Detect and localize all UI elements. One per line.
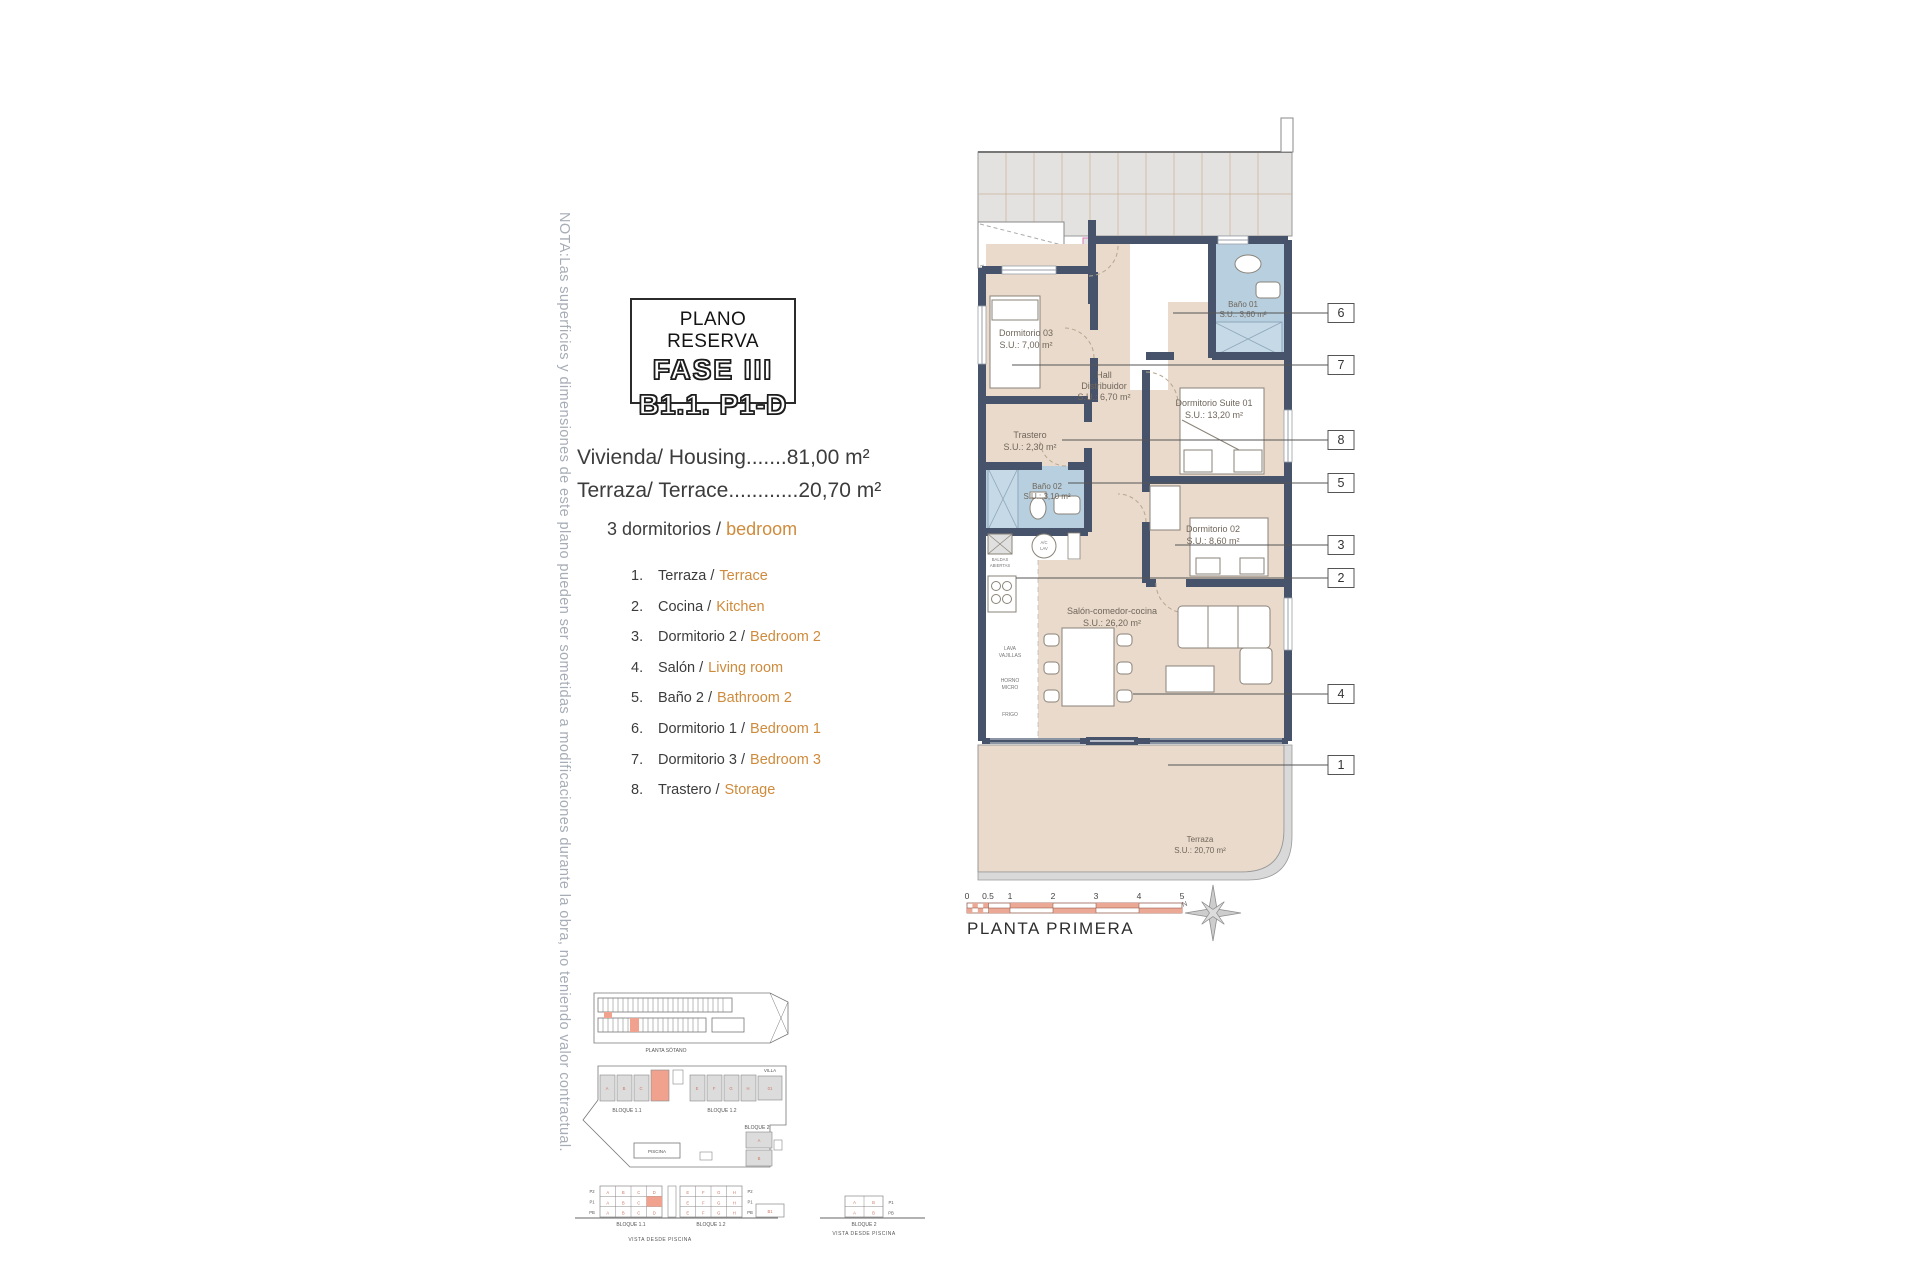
compass-north-label: N [1181,901,1188,909]
legend-num: 7. [631,752,658,768]
legend-item: 4.Salón /Living room [631,660,821,691]
svg-text:E: E [686,1211,689,1216]
bedrooms-heading: 3 dormitorios / bedroom [607,519,797,540]
svg-text:A: A [606,1211,609,1216]
svg-text:H: H [733,1200,736,1205]
annex-label: B1 [767,1209,773,1214]
svg-text:P2: P2 [589,1189,595,1194]
legend-num: 5. [631,690,658,706]
elev-block11-label: BLOQUE 1.1 [616,1222,645,1228]
label-bano-02: Baño 02 [1032,482,1062,491]
callout-3: 3 [1338,538,1345,552]
callout-7: 7 [1338,358,1345,372]
svg-text:A: A [758,1138,761,1143]
svg-text:PB: PB [888,1211,894,1216]
callout-8: 8 [1338,433,1345,447]
svg-text:B: B [872,1211,875,1216]
legend-es: Dormitorio 2 / [658,629,745,645]
label-salon: Salón-comedor-cocina [1067,606,1157,616]
svg-text:P1: P1 [589,1200,595,1205]
label-trastero: Trastero [1013,430,1046,440]
svg-text:S.U.: 13,20 m²: S.U.: 13,20 m² [1185,410,1243,420]
svg-text:S.U.: 3,60 m²: S.U.: 3,60 m² [1219,310,1266,319]
svg-text:S.U.: 20,70 m²: S.U.: 20,70 m² [1174,846,1226,855]
svg-text:S.U.: 3,10 m²: S.U.: 3,10 m² [1023,492,1070,501]
legend-en: Living room [708,660,783,676]
legend-es: Terraza / [658,568,714,584]
label-terraza: Terraza [1187,835,1214,844]
legend-num: 3. [631,629,658,645]
svg-text:F: F [702,1200,705,1205]
svg-text:PB: PB [589,1210,595,1215]
svg-text:D: D [653,1190,656,1195]
scale-tick: 0.5 [982,891,994,901]
svg-text:E: E [696,1086,699,1091]
svg-text:C: C [637,1200,640,1205]
kitchen-oven-label: HORNO [1001,678,1020,684]
legend-es: Dormitorio 1 / [658,721,745,737]
floor-plan: 1-D [950,100,1400,960]
view-label-2: VISTA DESDE PISCINA [832,1231,895,1237]
svg-text:B: B [622,1190,625,1195]
svg-text:C: C [637,1211,640,1216]
elev-block12-label: BLOQUE 1.2 [696,1222,725,1228]
svg-text:B: B [622,1200,625,1205]
block2-label: BLOQUE 2 [744,1125,769,1131]
svg-text:H: H [733,1190,736,1195]
villa-unit: 01 [768,1086,773,1091]
svg-text:S.U.: 7,00 m²: S.U.: 7,00 m² [999,340,1052,350]
block12-label: BLOQUE 1.2 [707,1108,736,1114]
elev-block2-label: BLOQUE 2 [851,1222,876,1228]
svg-text:P1: P1 [888,1200,894,1205]
surface-areas: Vivienda/ Housing.......81,00 m² Terraza… [577,441,881,507]
legend-item: 1.Terraza /Terrace [631,568,821,599]
svg-text:G: G [717,1200,720,1205]
svg-text:A: A [606,1086,609,1091]
legend-num: 6. [631,721,658,737]
callout-5: 5 [1338,476,1345,490]
housing-area: Vivienda/ Housing.......81,00 m² [577,441,881,474]
svg-text:MICRO: MICRO [1002,685,1019,691]
svg-text:S.U.: 2,30 m²: S.U.: 2,30 m² [1003,442,1056,452]
basement-label: PLANTA SÓTANO [646,1047,687,1054]
svg-text:B: B [872,1200,875,1205]
legend-en: Bedroom 3 [750,752,821,768]
legend-num: 8. [631,782,658,798]
label-suite-01: Dormitorio Suite 01 [1175,398,1252,408]
block11-label: BLOQUE 1.1 [612,1108,641,1114]
basement-plan [594,993,788,1043]
scale-tick: 4 [1137,891,1142,901]
svg-text:C: C [639,1086,642,1091]
legend-en: Storage [725,782,776,798]
scale-tick: 0 [965,891,970,901]
svg-text:Distribuidor: Distribuidor [1081,381,1127,391]
site-overview: PLANTA SÓTANO A B C BLOQUE 1.1 E F G H B… [570,985,1040,1280]
phase-title: FASE III [632,353,794,387]
kitchen-shelf-label: BALDAS [992,557,1009,562]
label-hall: Hall [1096,370,1112,380]
unit-title: B1.1. P1-D [632,387,794,423]
svg-text:F: F [702,1211,705,1216]
kitchen-dishwasher-label: LAVA [1004,646,1017,652]
legend-es: Baño 2 / [658,690,712,706]
svg-text:H: H [746,1086,749,1091]
legend-en: Bedroom 1 [750,721,821,737]
svg-text:A: A [853,1200,856,1205]
terrace-area: Terraza/ Terrace............20,70 m² [577,474,881,507]
legend-en: Kitchen [716,599,764,615]
svg-text:PB: PB [747,1210,753,1215]
room-legend: 1.Terraza /Terrace 2.Cocina /Kitchen 3.D… [631,568,821,813]
label-dormitorio-03: Dormitorio 03 [999,328,1053,338]
legend-num: 1. [631,568,658,584]
elevation-block-2: A B A B P1 PB BLOQUE 2 VISTA DESDE PISCI… [820,1196,925,1237]
svg-text:E: E [686,1200,689,1205]
svg-text:G: G [717,1190,720,1195]
svg-text:G: G [717,1211,720,1216]
scale-tick: 3 [1094,891,1099,901]
svg-text:B: B [758,1156,761,1161]
svg-text:A: A [606,1190,609,1195]
legend-en: Terrace [719,568,767,584]
svg-text:P1: P1 [747,1200,753,1205]
svg-text:P2: P2 [747,1189,753,1194]
svg-text:C: C [637,1190,640,1195]
elevation-blocks-1: A B C D A B C A B C D P2 P1 PB BLOQUE 1.… [575,1186,784,1243]
floor-label: PLANTA PRIMERA [967,919,1134,938]
legend-item: 6.Dormitorio 1 /Bedroom 1 [631,721,821,752]
legend-item: 8.Trastero /Storage [631,782,821,813]
label-dormitorio-02: Dormitorio 02 [1186,524,1240,534]
callout-2: 2 [1338,571,1345,585]
legend-es: Cocina / [658,599,711,615]
compass-icon: N [1181,885,1241,941]
highlighted-elevation-unit [647,1196,663,1206]
svg-text:E: E [686,1190,689,1195]
legend-es: Trastero / [658,782,720,798]
legend-num: 2. [631,599,658,615]
common-corridor [978,118,1293,236]
legend-en: Bedroom 2 [750,629,821,645]
svg-text:A: A [853,1211,856,1216]
svg-text:ABIERTAS: ABIERTAS [990,563,1011,568]
svg-text:B: B [623,1086,626,1091]
legend-item: 5.Baño 2 /Bathroom 2 [631,690,821,721]
bedrooms-heading-en: bedroom [726,519,797,539]
legend-es: Dormitorio 3 / [658,752,745,768]
svg-text:S.U.: 6,70 m²: S.U.: 6,70 m² [1077,392,1130,402]
svg-text:LAV: LAV [1040,546,1048,551]
view-label-1: VISTA DESDE PISCINA [628,1237,691,1243]
pool-label: PISCINA [648,1149,666,1154]
svg-text:D: D [653,1211,656,1216]
plan-subtitle: PLANO RESERVA [632,309,794,353]
callout-6: 6 [1338,306,1345,320]
callout-4: 4 [1338,687,1345,701]
svg-text:A: A [606,1200,609,1205]
legend-es: Salón / [658,660,703,676]
kitchen-fridge-label: FRIGO [1002,712,1018,718]
legend-num: 4. [631,660,658,676]
svg-text:F: F [702,1190,705,1195]
scale-bar: 0 0.5 1 2 3 4 5 [965,891,1185,913]
callout-1: 1 [1338,758,1345,772]
scale-tick: 1 [1008,891,1013,901]
legend-item: 3.Dormitorio 2 /Bedroom 2 [631,629,821,660]
svg-text:B: B [622,1211,625,1216]
svg-text:VAJILLAS: VAJILLAS [999,653,1022,659]
scale-tick: 5 [1180,891,1185,901]
scale-tick: 2 [1051,891,1056,901]
site-plan: A B C BLOQUE 1.1 E F G H BLOQUE 1.2 VILL… [583,1066,786,1167]
svg-text:H: H [733,1211,736,1216]
legend-item: 2.Cocina /Kitchen [631,599,821,630]
kitchen-ac-label: A/C [1041,540,1048,545]
svg-text:F: F [713,1086,716,1091]
highlighted-unit [651,1070,669,1101]
legend-item: 7.Dormitorio 3 /Bedroom 3 [631,752,821,783]
title-box: PLANO RESERVA FASE III B1.1. P1-D [630,298,796,404]
legend-en: Bathroom 2 [717,690,792,706]
svg-text:G: G [729,1086,732,1091]
svg-text:S.U.: 26,20 m²: S.U.: 26,20 m² [1083,618,1141,628]
wall-stub [1281,118,1293,152]
svg-text:S.U.: 8,60 m²: S.U.: 8,60 m² [1186,536,1239,546]
bedrooms-heading-es: 3 dormitorios / [607,519,721,539]
page: { "colors":{ "room_beige":"#e9dacc","bat… [0,0,1920,1280]
label-bano-01: Baño 01 [1228,300,1258,309]
villa-label: VILLA [764,1068,776,1073]
